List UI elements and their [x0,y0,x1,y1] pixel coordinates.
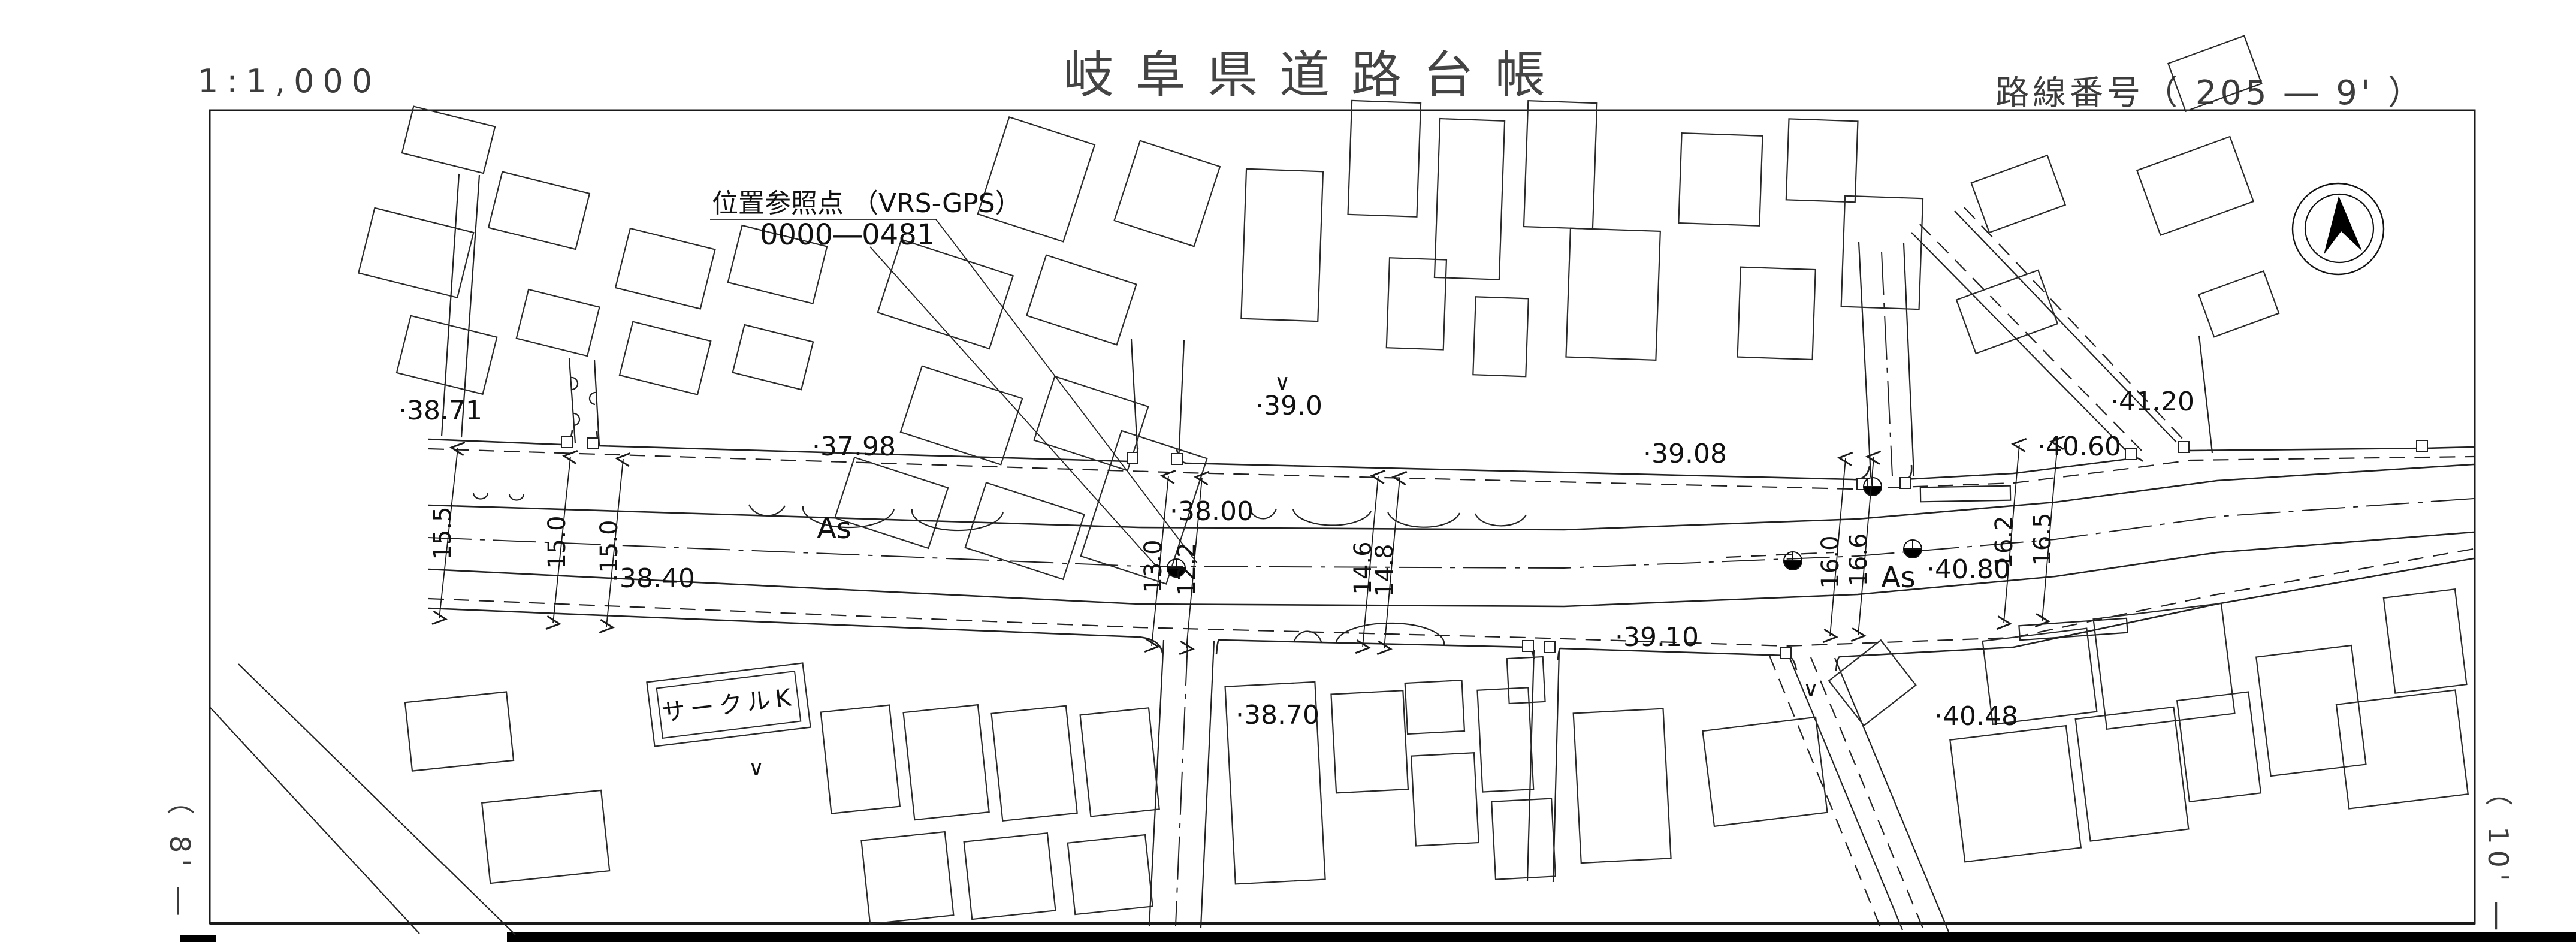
spot-elevation: ·40.60 [2037,431,2121,462]
north-arrow-icon [2293,183,2384,274]
width-dim: 16.0 [1817,535,1844,588]
spot-elevation: ·40.48 [1934,701,2018,732]
spot-elevation: ·39.0 [1255,391,1322,421]
spot-elevation: ·39.08 [1643,439,1727,469]
spot-elevation: ·38.00 [1170,496,1254,527]
store-block: サークルK [647,663,810,746]
spot-elevation: ·38.71 [398,395,482,426]
width-dim: 16.2 [1991,515,2018,569]
road-ledger-sheet: { "header": { "scale": "1:1,000", "title… [0,0,2576,942]
width-dim: 14.8 [1371,544,1399,597]
spot-elevation: ·38.70 [1236,700,1319,730]
vegetation-mark: ∨ [1275,370,1290,395]
reference-point: 位置参照点 （VRS-GPS） 0000―0481 [712,188,1022,252]
width-dim: 15.0 [543,515,571,569]
width-dim: 12.2 [1173,542,1201,596]
vegetation-mark: ∨ [748,756,764,781]
road-edges [428,430,2474,671]
section-lines [439,442,2058,648]
spot-elevation: ·39.10 [1615,622,1699,653]
road-centerline [428,252,2474,926]
spot-elevation: ·41.20 [2110,387,2194,417]
pavement-label: As [1881,561,1916,594]
reference-point-leaders [710,219,1197,566]
width-dim: 13.0 [1140,539,1167,593]
store-label: サークルK [660,683,798,727]
width-dim: 15.5 [429,506,457,560]
reference-point-number: 0000―0481 [760,218,935,252]
map-canvas: サークルK 位置参照点 （VRS-GPS） 0000―0481 ·38.71 ·… [0,0,2576,942]
pavement-label: As [817,512,851,545]
reference-point-label: 位置参照点 （VRS-GPS） [712,188,1022,219]
width-dim: 16.5 [2029,512,2056,566]
road-dashed-lines [428,207,2474,932]
spot-elevation: ·38.40 [611,563,695,594]
buildings [337,36,2481,939]
spot-elevation: ·37.98 [812,431,896,462]
width-dim: 15.0 [596,520,623,573]
width-dim: 16.6 [1845,533,1873,586]
manhole-symbols [1167,478,1922,577]
vegetation-mark: ∨ [1803,677,1819,702]
